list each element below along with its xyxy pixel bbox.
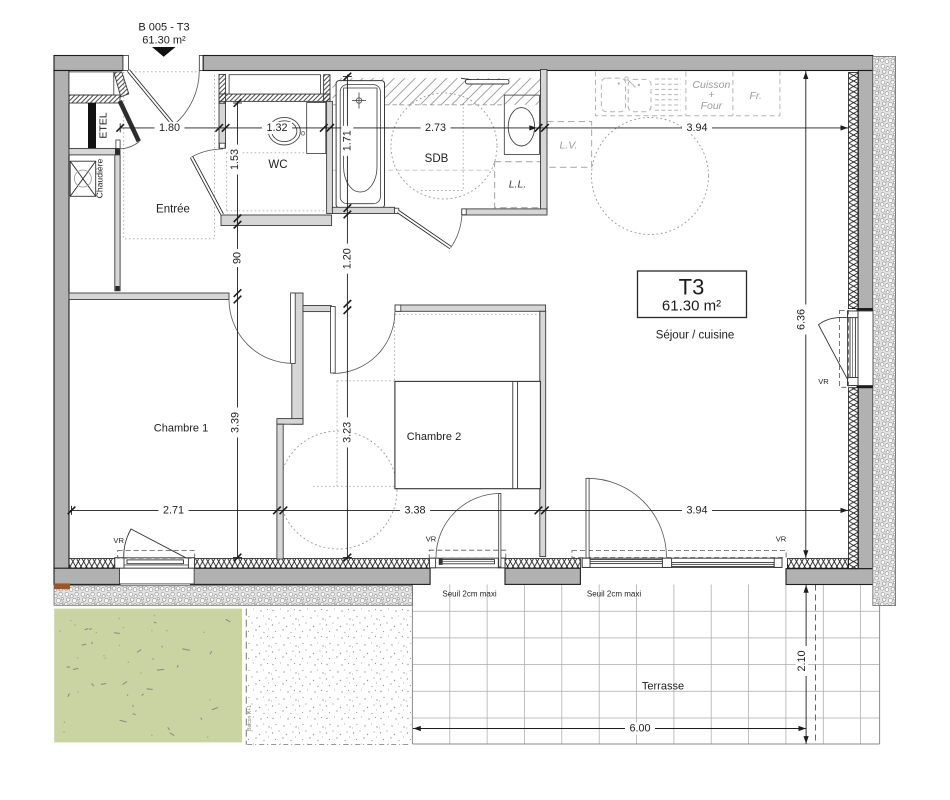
svg-text:Entrée: Entrée	[156, 204, 190, 216]
svg-text:3.38: 3.38	[404, 504, 425, 516]
svg-text:6.36: 6.36	[796, 309, 808, 330]
svg-text:90: 90	[232, 252, 244, 264]
svg-text:2.73: 2.73	[425, 122, 446, 134]
svg-text:Terrasse: Terrasse	[642, 681, 684, 693]
svg-text:3.94: 3.94	[686, 504, 707, 516]
svg-text:Four: Four	[701, 100, 723, 112]
svg-text:Séjour / cuisine: Séjour / cuisine	[656, 330, 735, 342]
svg-text:L.V.: L.V.	[560, 140, 578, 152]
svg-text:2.71: 2.71	[163, 504, 184, 516]
svg-text:Seuil 2cm maxi: Seuil 2cm maxi	[587, 590, 641, 599]
svg-text:B 005 - T3: B 005 - T3	[138, 22, 189, 34]
svg-text:Seuil 2cm maxi: Seuil 2cm maxi	[442, 590, 496, 599]
svg-text:3.39: 3.39	[230, 412, 242, 433]
svg-text:T3: T3	[679, 275, 705, 300]
svg-text:Chaudière: Chaudière	[95, 158, 105, 198]
svg-text:61.30 m²: 61.30 m²	[662, 298, 721, 315]
svg-text:3.94: 3.94	[686, 122, 707, 134]
svg-text:1.20: 1.20	[341, 248, 353, 269]
svg-text:L.L.: L.L.	[509, 179, 527, 191]
svg-text:Fr.: Fr.	[749, 90, 761, 102]
svg-text:1.53: 1.53	[229, 149, 241, 170]
svg-text:VR: VR	[818, 377, 829, 386]
svg-text:Chambre 2: Chambre 2	[407, 431, 461, 443]
svg-text:Balcon R+1: Balcon R+1	[247, 705, 253, 731]
svg-text:2.10: 2.10	[796, 650, 808, 671]
svg-text:VR: VR	[113, 536, 124, 545]
svg-text:1.80: 1.80	[159, 122, 180, 134]
svg-text:61.30 m²: 61.30 m²	[142, 35, 186, 47]
svg-text:VR: VR	[426, 535, 437, 544]
svg-text:ETEL: ETEL	[98, 112, 110, 138]
svg-text:6.00: 6.00	[629, 723, 650, 735]
svg-text:1.32: 1.32	[266, 122, 287, 134]
svg-text:SDB: SDB	[425, 153, 449, 165]
svg-text:WC: WC	[268, 159, 287, 171]
svg-text:3.23: 3.23	[341, 422, 353, 443]
svg-text:VR: VR	[776, 535, 787, 544]
svg-text:Chambre 1: Chambre 1	[154, 423, 208, 435]
svg-text:1.71: 1.71	[341, 130, 353, 151]
